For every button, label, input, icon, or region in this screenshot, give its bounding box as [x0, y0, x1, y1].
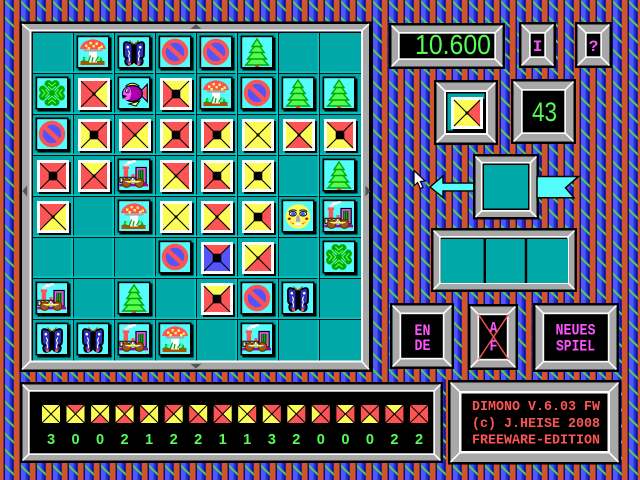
svg-text:0: 0 — [317, 432, 325, 448]
svg-text:A: A — [490, 319, 499, 337]
svg-text:0: 0 — [96, 432, 104, 448]
svg-text:2: 2 — [390, 432, 398, 448]
svg-text:I: I — [533, 38, 543, 56]
svg-text:3: 3 — [47, 432, 55, 448]
svg-text:43: 43 — [532, 97, 557, 127]
svg-text:0: 0 — [71, 432, 79, 448]
svg-text:0: 0 — [366, 432, 374, 448]
svg-text:?: ? — [589, 38, 599, 56]
svg-text:2: 2 — [170, 432, 178, 448]
svg-text:10.600: 10.600 — [415, 29, 491, 60]
svg-text:3: 3 — [268, 432, 276, 448]
svg-text:DE: DE — [415, 337, 431, 355]
svg-text:DIMONO V.6.03 FW: DIMONO V.6.03 FW — [472, 400, 601, 415]
svg-text:0: 0 — [341, 432, 349, 448]
svg-text:2: 2 — [121, 432, 129, 448]
svg-text:1: 1 — [145, 432, 153, 448]
svg-text:1: 1 — [243, 432, 251, 448]
svg-text:FREEWARE-EDITION: FREEWARE-EDITION — [472, 434, 600, 449]
svg-text:1: 1 — [219, 432, 227, 448]
svg-text:2: 2 — [415, 432, 423, 448]
svg-text:2: 2 — [292, 432, 300, 448]
svg-text:(c) J.HEISE 2008: (c) J.HEISE 2008 — [472, 417, 600, 432]
svg-text:2: 2 — [194, 432, 202, 448]
svg-text:SPIEL: SPIEL — [556, 337, 595, 355]
